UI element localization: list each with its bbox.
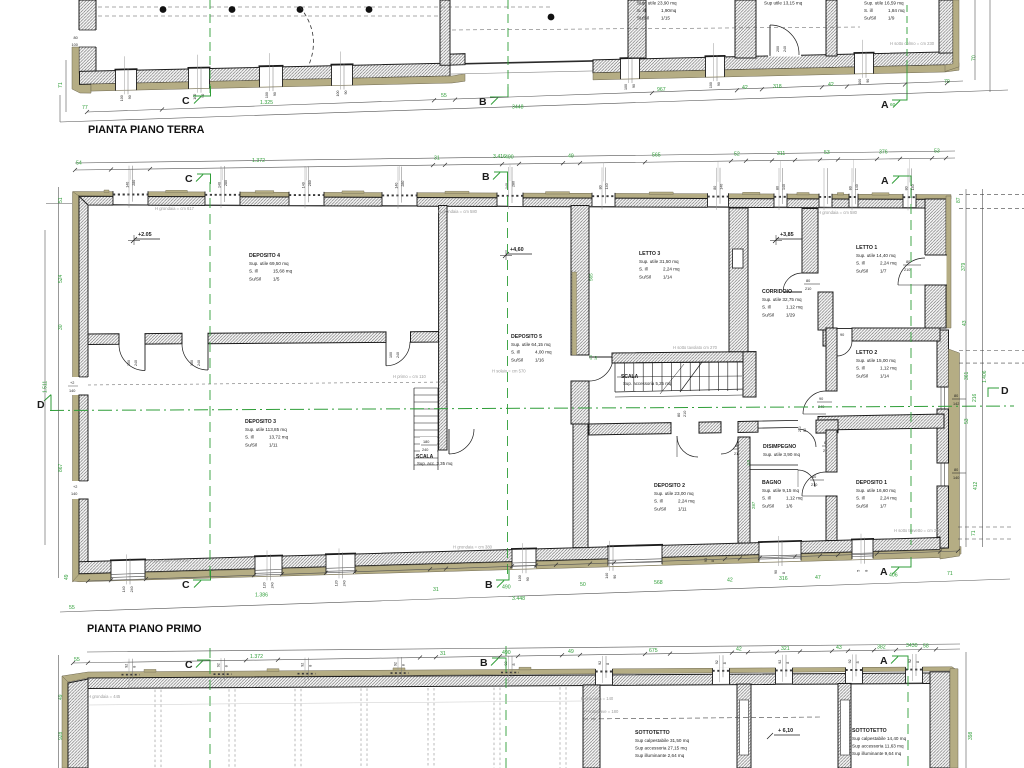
svg-text:Sup. utile 69,50 mq: Sup. utile 69,50 mq <box>249 261 289 266</box>
svg-text:A: A <box>881 175 889 187</box>
svg-text:D: D <box>1001 385 1009 397</box>
svg-text:S. ill: S. ill <box>637 8 646 13</box>
svg-text:120: 120 <box>263 582 267 588</box>
svg-text:H grondaia = cm 380: H grondaia = cm 380 <box>453 545 493 550</box>
svg-text:LETTO 1: LETTO 1 <box>856 245 877 251</box>
svg-text:Sup accessoria 11,63 mq: Sup accessoria 11,63 mq <box>852 744 904 749</box>
svg-text:H grondaia = cm 580: H grondaia = cm 580 <box>818 210 858 215</box>
svg-text:316: 316 <box>779 576 788 582</box>
svg-text:210: 210 <box>904 268 910 272</box>
svg-text:1,84 mq: 1,84 mq <box>888 8 905 13</box>
svg-text:287: 287 <box>751 501 756 509</box>
svg-text:142: 142 <box>953 402 959 406</box>
svg-text:S. ill: S. ill <box>856 366 865 371</box>
svg-text:8: 8 <box>723 662 727 664</box>
svg-text:71: 71 <box>58 82 64 88</box>
svg-text:1/16: 1/16 <box>535 357 544 362</box>
svg-text:71: 71 <box>971 530 977 536</box>
svg-text:SCALA: SCALA <box>416 454 434 460</box>
svg-text:361: 361 <box>964 371 970 380</box>
svg-text:3430: 3430 <box>906 643 918 649</box>
svg-text:200: 200 <box>776 46 780 52</box>
svg-text:1/7: 1/7 <box>880 268 887 273</box>
svg-text:49: 49 <box>568 154 574 160</box>
svg-text:S. ill: S. ill <box>639 267 648 272</box>
svg-text:58: 58 <box>923 644 929 650</box>
svg-text:54: 54 <box>76 161 82 167</box>
svg-text:DEPOSITO 5: DEPOSITO 5 <box>511 334 542 340</box>
svg-text:524: 524 <box>58 274 64 283</box>
svg-text:100: 100 <box>265 92 269 98</box>
svg-text:100: 100 <box>389 352 393 358</box>
svg-text:92: 92 <box>908 659 912 663</box>
svg-text:1/7: 1/7 <box>880 503 887 508</box>
svg-text:+3,85: +3,85 <box>780 232 794 238</box>
svg-text:53: 53 <box>964 418 970 424</box>
svg-text:Su/SIl: Su/SIl <box>654 506 666 511</box>
svg-text:PIANTA PIANO PRIMO: PIANTA PIANO PRIMO <box>87 623 202 635</box>
svg-text:BAGNO: BAGNO <box>762 480 781 486</box>
svg-text:C: C <box>185 659 193 671</box>
svg-text:Sup. utile 15,00 mq: Sup. utile 15,00 mq <box>856 358 896 363</box>
svg-text:280: 280 <box>132 180 136 186</box>
svg-text:49: 49 <box>64 574 70 580</box>
svg-text:Sup. acc. 3,35 mq: Sup. acc. 3,35 mq <box>417 461 453 466</box>
svg-text:140: 140 <box>782 184 786 190</box>
svg-text:140: 140 <box>395 183 399 189</box>
svg-text:H grondaia = 140: H grondaia = 140 <box>581 696 614 701</box>
svg-text:SOTTOTETTO: SOTTOTETTO <box>635 730 670 736</box>
svg-text:49: 49 <box>58 694 64 700</box>
svg-text:490: 490 <box>502 650 511 656</box>
svg-text:1.372: 1.372 <box>250 654 263 660</box>
svg-text:92: 92 <box>598 661 602 665</box>
svg-text:8: 8 <box>916 661 920 663</box>
svg-text:92: 92 <box>778 660 782 664</box>
svg-text:100: 100 <box>624 84 628 90</box>
svg-text:90: 90 <box>632 84 636 88</box>
svg-text:140: 140 <box>71 492 77 496</box>
svg-text:240: 240 <box>271 582 275 588</box>
svg-text:Sup utile 13,15 mq: Sup utile 13,15 mq <box>764 1 803 6</box>
svg-text:240: 240 <box>134 360 138 366</box>
svg-text:DEPOSITO 2: DEPOSITO 2 <box>654 483 685 489</box>
svg-text:90: 90 <box>344 91 348 95</box>
svg-text:13,72 mq: 13,72 mq <box>269 435 289 440</box>
svg-text:3.448: 3.448 <box>512 596 525 602</box>
svg-text:216: 216 <box>972 393 978 402</box>
svg-text:60: 60 <box>812 475 816 479</box>
svg-text:8: 8 <box>856 661 860 663</box>
svg-text:80: 80 <box>954 468 958 472</box>
svg-text:H solaio = cm 570: H solaio = cm 570 <box>492 369 526 374</box>
svg-text:H sotto travetto = cm 230: H sotto travetto = cm 230 <box>894 528 942 533</box>
svg-text:1.511: 1.511 <box>43 381 49 393</box>
svg-text:A: A <box>880 566 888 578</box>
svg-text:80: 80 <box>803 428 807 432</box>
svg-text:DISIMPEGNO: DISIMPEGNO <box>763 444 796 450</box>
svg-text:8: 8 <box>865 570 869 572</box>
svg-text:50: 50 <box>580 582 586 588</box>
svg-text:140: 140 <box>122 586 126 592</box>
svg-text:PIANTA PIANO TERRA: PIANTA PIANO TERRA <box>88 124 205 136</box>
svg-text:80: 80 <box>74 36 78 40</box>
svg-text:Su/SIl: Su/SIl <box>249 276 261 281</box>
svg-text:B: B <box>482 171 490 183</box>
svg-text:C: C <box>182 579 190 591</box>
svg-text:280: 280 <box>224 180 228 186</box>
svg-text:318: 318 <box>773 84 782 90</box>
svg-text:C: C <box>182 95 190 107</box>
svg-text:Sup. utile 16,60 mq: Sup. utile 16,60 mq <box>856 488 896 493</box>
svg-text:4,5: 4,5 <box>589 355 593 360</box>
svg-text:92: 92 <box>125 664 129 668</box>
svg-text:100: 100 <box>709 82 713 88</box>
svg-text:398: 398 <box>968 731 974 740</box>
svg-text:565: 565 <box>652 153 661 159</box>
svg-text:100: 100 <box>72 43 78 47</box>
svg-text:H grondaia = cm 415: H grondaia = cm 415 <box>150 558 190 563</box>
svg-text:80: 80 <box>599 185 603 189</box>
svg-text:80: 80 <box>954 394 958 398</box>
svg-text:2,24 mq: 2,24 mq <box>678 499 695 504</box>
svg-text:90: 90 <box>840 333 844 337</box>
svg-text:H sottotrave = 180: H sottotrave = 180 <box>584 709 619 714</box>
svg-text:92: 92 <box>394 662 398 666</box>
svg-text:+4,60: +4,60 <box>510 247 524 253</box>
svg-text:S. ill: S. ill <box>654 499 663 504</box>
svg-text:280: 280 <box>308 180 312 186</box>
svg-text:1/5: 1/5 <box>273 276 280 281</box>
svg-text:H sotto colmo = cm 230: H sotto colmo = cm 230 <box>890 41 935 46</box>
svg-text:Su/SIl: Su/SIl <box>762 312 774 317</box>
svg-text:B: B <box>485 579 493 591</box>
svg-text:DEPOSITO 3: DEPOSITO 3 <box>245 419 276 425</box>
svg-text:Sup accessoria 27,15 mq: Sup accessoria 27,15 mq <box>635 746 687 751</box>
svg-text:Su/SIl: Su/SIl <box>856 268 868 273</box>
svg-text:406: 406 <box>889 573 898 579</box>
svg-text:90: 90 <box>866 79 870 83</box>
svg-text:8: 8 <box>133 666 137 668</box>
svg-text:568: 568 <box>654 580 663 586</box>
svg-text:S. ill: S. ill <box>511 350 520 355</box>
svg-text:240: 240 <box>130 586 134 592</box>
svg-text:140: 140 <box>605 183 609 189</box>
svg-text:321: 321 <box>781 646 790 652</box>
svg-text:47: 47 <box>815 575 821 581</box>
svg-text:LETTO 2: LETTO 2 <box>856 350 877 356</box>
svg-text:43: 43 <box>962 320 968 326</box>
svg-text:8: 8 <box>782 572 786 574</box>
svg-text:4,00 mq: 4,00 mq <box>535 350 552 355</box>
svg-text:Sup. utile 14,40 mq: Sup. utile 14,40 mq <box>856 253 896 258</box>
svg-text:31: 31 <box>433 587 439 593</box>
svg-text:240: 240 <box>783 46 787 52</box>
svg-text:92: 92 <box>217 663 221 667</box>
svg-text:49: 49 <box>568 649 574 655</box>
svg-text:S. ill: S. ill <box>864 8 873 13</box>
svg-text:42: 42 <box>742 85 748 91</box>
svg-text:100: 100 <box>120 95 124 101</box>
svg-text:1/6: 1/6 <box>786 503 793 508</box>
svg-text:1/29: 1/29 <box>786 312 795 317</box>
svg-text:87: 87 <box>956 197 962 203</box>
svg-text:100: 100 <box>858 79 862 85</box>
svg-text:140: 140 <box>855 184 859 190</box>
svg-text:+2.05: +2.05 <box>138 232 152 238</box>
svg-text:8: 8 <box>309 665 313 667</box>
svg-text:SOTTOTETTO: SOTTOTETTO <box>852 728 887 734</box>
svg-text:1/14: 1/14 <box>880 373 889 378</box>
svg-text:1,90mq: 1,90mq <box>661 8 677 13</box>
svg-text:42: 42 <box>736 647 742 653</box>
svg-text:140: 140 <box>126 182 130 188</box>
svg-text:675: 675 <box>649 648 658 654</box>
svg-text:90: 90 <box>526 577 530 581</box>
svg-text:180: 180 <box>423 440 429 444</box>
svg-text:90: 90 <box>128 95 132 99</box>
svg-text:Sup. utile 32,75 mq: Sup. utile 32,75 mq <box>762 297 802 302</box>
svg-text:280: 280 <box>512 181 516 187</box>
svg-text:210: 210 <box>811 483 817 487</box>
svg-text:280: 280 <box>401 181 405 187</box>
svg-text:S. ill: S. ill <box>245 435 254 440</box>
svg-text:1.386: 1.386 <box>255 592 268 598</box>
svg-text:140: 140 <box>505 183 509 189</box>
svg-text:100: 100 <box>127 360 131 366</box>
svg-text:140: 140 <box>218 182 222 188</box>
svg-text:92: 92 <box>848 659 852 663</box>
svg-text:92: 92 <box>301 663 305 667</box>
svg-text:80: 80 <box>906 260 910 264</box>
svg-text:240: 240 <box>396 352 400 358</box>
svg-text:90: 90 <box>273 92 277 96</box>
svg-text:140: 140 <box>69 389 75 393</box>
svg-text:Su/SIl: Su/SIl <box>856 503 868 508</box>
svg-text:120: 120 <box>335 580 339 586</box>
svg-text:90: 90 <box>613 575 617 579</box>
svg-text:2,24 mq: 2,24 mq <box>880 496 897 501</box>
svg-text:92: 92 <box>715 660 719 664</box>
svg-text:Su/SIl: Su/SIl <box>856 373 868 378</box>
svg-text:490: 490 <box>505 155 514 161</box>
svg-text:80: 80 <box>776 186 780 190</box>
svg-text:1.325: 1.325 <box>260 100 273 106</box>
svg-text:Sup calpestabile 14,40 mq: Sup calpestabile 14,40 mq <box>852 736 907 741</box>
svg-text:140: 140 <box>302 182 306 188</box>
svg-text:15,68 mq: 15,68 mq <box>273 269 293 274</box>
svg-text:55: 55 <box>74 657 80 663</box>
svg-text:1,12 mq: 1,12 mq <box>786 496 803 501</box>
svg-text:S. ill: S. ill <box>856 496 865 501</box>
svg-text:240: 240 <box>343 580 347 586</box>
svg-text:8: 8 <box>225 665 229 667</box>
svg-text:412: 412 <box>973 481 979 490</box>
svg-text:Sup illuminante 9,64 mq: Sup illuminante 9,64 mq <box>852 751 902 756</box>
svg-text:100: 100 <box>193 94 197 100</box>
svg-text:80: 80 <box>713 186 717 190</box>
svg-text:140: 140 <box>911 184 915 190</box>
svg-text:8: 8 <box>606 663 610 665</box>
svg-text:867: 867 <box>58 463 64 472</box>
svg-text:8: 8 <box>402 664 406 666</box>
svg-text:8: 8 <box>711 560 715 562</box>
svg-text:42: 42 <box>828 82 834 88</box>
svg-text:90: 90 <box>819 397 823 401</box>
svg-text:1.406: 1.406 <box>982 370 988 383</box>
svg-text:140: 140 <box>720 184 724 190</box>
svg-text:B: B <box>480 657 488 669</box>
svg-text:51: 51 <box>58 197 64 203</box>
svg-text:110: 110 <box>747 460 751 466</box>
svg-text:379: 379 <box>961 262 967 271</box>
svg-text:53: 53 <box>934 149 940 155</box>
svg-text:1.372: 1.372 <box>252 158 265 164</box>
svg-text:8: 8 <box>512 664 516 666</box>
svg-text:100: 100 <box>336 91 340 97</box>
svg-text:Sup. utile 31,50 mq: Sup. utile 31,50 mq <box>639 259 679 264</box>
svg-text:490: 490 <box>502 585 511 591</box>
svg-text:Sup illuminante 2,64 mq: Sup illuminante 2,64 mq <box>635 753 685 758</box>
svg-text:1,12 mq: 1,12 mq <box>880 366 897 371</box>
svg-text:Su/SIl: Su/SIl <box>762 503 774 508</box>
svg-text:Sup. utile 16,59 mq: Sup. utile 16,59 mq <box>864 1 904 6</box>
svg-text:3448: 3448 <box>512 105 524 111</box>
svg-text:H grondaia = cm 617: H grondaia = cm 617 <box>155 206 195 211</box>
svg-text:240: 240 <box>422 448 428 452</box>
svg-text:80: 80 <box>806 279 810 283</box>
svg-text:565: 565 <box>589 273 594 281</box>
svg-text:240: 240 <box>197 360 201 366</box>
svg-text:S. ill: S. ill <box>762 496 771 501</box>
svg-text:Sup. utile 113,85 mq: Sup. utile 113,85 mq <box>245 427 287 432</box>
svg-text:80: 80 <box>849 186 853 190</box>
svg-text:S. ill: S. ill <box>762 305 771 310</box>
svg-text:S. ill: S. ill <box>249 269 258 274</box>
svg-text:H sotto tavolato cm 270: H sotto tavolato cm 270 <box>673 345 718 350</box>
svg-text:H grondaia = 445: H grondaia = 445 <box>88 694 121 699</box>
svg-text:1/11: 1/11 <box>678 506 687 511</box>
svg-text:376: 376 <box>879 150 888 156</box>
svg-text:55: 55 <box>69 605 75 611</box>
svg-text:8: 8 <box>786 662 790 664</box>
svg-text:311: 311 <box>777 151 785 157</box>
svg-text:H primo = cm 110: H primo = cm 110 <box>393 374 427 379</box>
svg-text:A: A <box>881 99 889 111</box>
svg-text:Sup. utile 23,90 mq: Sup. utile 23,90 mq <box>637 1 677 6</box>
svg-text:D: D <box>37 399 45 411</box>
svg-text:CORRIDOIO: CORRIDOIO <box>762 289 792 295</box>
svg-text:Sup. accessoria 5,25 mq: Sup. accessoria 5,25 mq <box>623 381 672 386</box>
svg-text:42: 42 <box>727 578 733 584</box>
svg-text:60: 60 <box>890 102 896 108</box>
svg-text:52: 52 <box>734 152 740 158</box>
svg-text:2,24 mq: 2,24 mq <box>663 267 680 272</box>
svg-text:210: 210 <box>683 411 687 417</box>
svg-text:Su/SIl: Su/SIl <box>637 16 649 21</box>
svg-text:S. ill: S. ill <box>856 261 865 266</box>
svg-text:967: 967 <box>657 87 666 93</box>
svg-text:70: 70 <box>972 55 978 61</box>
svg-text:382: 382 <box>877 644 886 650</box>
svg-text:10: 10 <box>594 356 598 360</box>
svg-text:1/11: 1/11 <box>269 442 278 447</box>
svg-text:+2: +2 <box>70 381 74 385</box>
svg-text:71: 71 <box>947 571 953 577</box>
svg-text:30: 30 <box>58 324 64 330</box>
svg-text:210: 210 <box>805 287 811 291</box>
svg-text:Su/SIl: Su/SIl <box>511 357 523 362</box>
svg-text:Sup. utile 64,15 mq: Sup. utile 64,15 mq <box>511 342 551 347</box>
svg-text:A: A <box>880 655 888 667</box>
svg-text:+2: +2 <box>73 485 77 489</box>
svg-text:31: 31 <box>440 651 446 657</box>
svg-text:140: 140 <box>605 573 609 579</box>
svg-text:90: 90 <box>774 570 778 574</box>
svg-text:Sup calpestabile 31,50 mq: Sup calpestabile 31,50 mq <box>635 738 690 743</box>
svg-text:1/15: 1/15 <box>661 16 670 21</box>
svg-text:DEPOSITO 1: DEPOSITO 1 <box>856 480 887 486</box>
svg-text:LETTO 3: LETTO 3 <box>639 251 660 257</box>
svg-text:SCALA: SCALA <box>621 374 639 380</box>
svg-text:C: C <box>185 173 193 185</box>
svg-text:1,12 mq: 1,12 mq <box>786 305 803 310</box>
svg-text:Su/SIl: Su/SIl <box>245 442 257 447</box>
svg-text:Sup. utile 23,00 mq: Sup. utile 23,00 mq <box>654 491 694 496</box>
svg-text:77: 77 <box>82 105 88 111</box>
svg-text:Sup. utile 9,15 mq: Sup. utile 9,15 mq <box>762 488 799 493</box>
svg-text:H grondaia = cm 580: H grondaia = cm 580 <box>438 209 478 214</box>
svg-text:140: 140 <box>953 476 959 480</box>
svg-text:55: 55 <box>441 93 447 99</box>
svg-text:90: 90 <box>717 82 721 86</box>
svg-text:70: 70 <box>944 79 950 85</box>
svg-text:DEPOSITO 4: DEPOSITO 4 <box>249 253 280 259</box>
svg-text:Sup. utile 3,90 mq: Sup. utile 3,90 mq <box>763 452 800 457</box>
svg-text:Su/SIl: Su/SIl <box>864 16 876 21</box>
svg-text:5: 5 <box>857 570 861 572</box>
svg-text:+ 6,10: + 6,10 <box>778 728 793 734</box>
svg-text:100: 100 <box>518 575 522 581</box>
svg-text:80: 80 <box>677 413 681 417</box>
svg-text:31: 31 <box>434 156 440 162</box>
svg-text:210: 210 <box>798 426 802 432</box>
svg-text:Su/SIl: Su/SIl <box>639 274 651 279</box>
svg-text:2,24 mq: 2,24 mq <box>880 261 897 266</box>
svg-text:53: 53 <box>824 150 830 156</box>
svg-text:80: 80 <box>905 186 909 190</box>
svg-text:43: 43 <box>836 645 842 651</box>
svg-text:1/9: 1/9 <box>888 16 895 21</box>
svg-text:1/14: 1/14 <box>663 274 672 279</box>
svg-text:100: 100 <box>190 360 194 366</box>
svg-text:928: 928 <box>58 731 64 740</box>
